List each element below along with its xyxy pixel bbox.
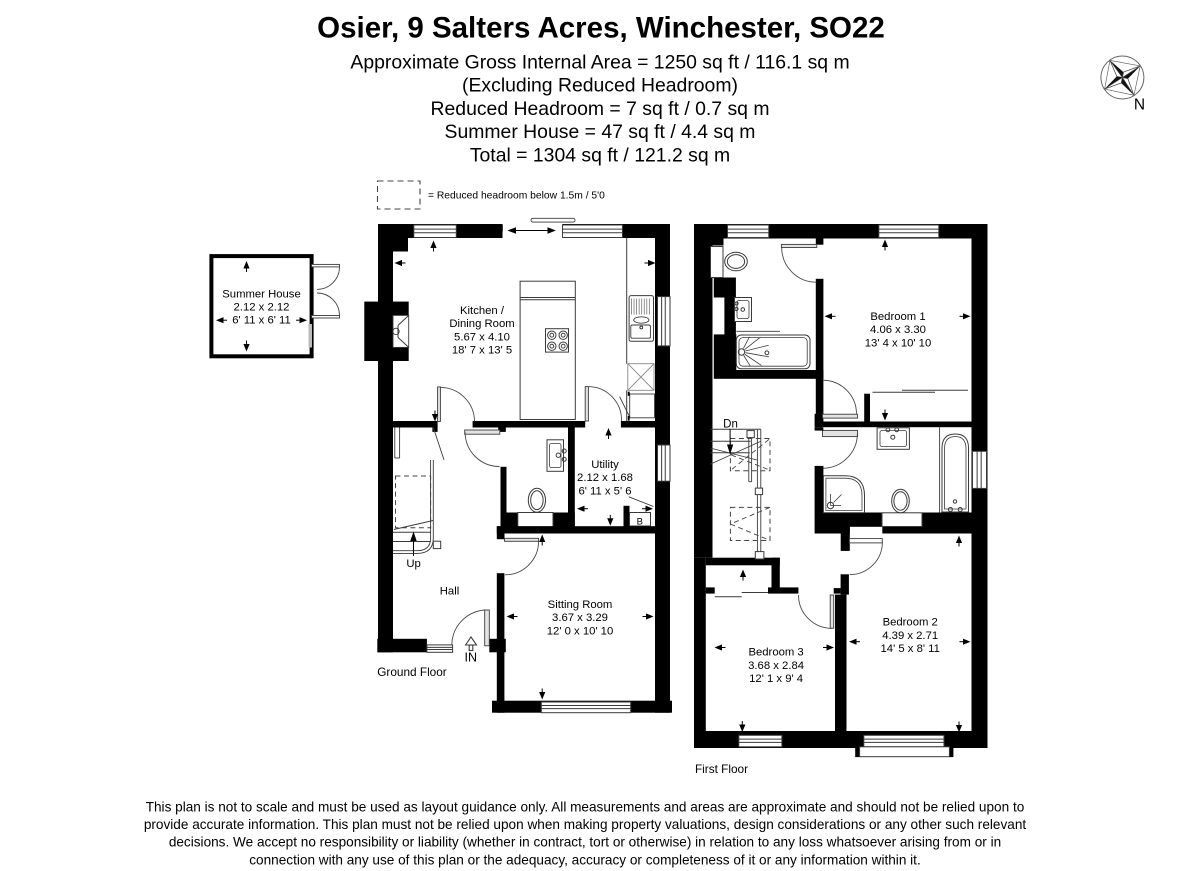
svg-text:18' 7 x 13' 5: 18' 7 x 13' 5 (452, 345, 512, 357)
svg-text:= Reduced headroom below 1.5m: = Reduced headroom below 1.5m / 5'0 (428, 191, 605, 202)
svg-text:12' 1 x 9' 4: 12' 1 x 9' 4 (749, 673, 803, 685)
svg-text:Ground Floor: Ground Floor (377, 665, 447, 679)
svg-text:decisions. We accept no respon: decisions. We accept no responsibility o… (169, 835, 1001, 850)
svg-text:IN: IN (465, 651, 478, 665)
svg-text:2.12 x 1.68: 2.12 x 1.68 (577, 472, 633, 484)
svg-text:connection with any use of thi: connection with any use of this plan or … (249, 852, 920, 867)
svg-text:N: N (1134, 97, 1145, 114)
svg-text:13' 4 x 10' 10: 13' 4 x 10' 10 (865, 337, 932, 349)
svg-text:Up: Up (406, 558, 420, 570)
svg-text:Summer House: Summer House (222, 288, 300, 300)
svg-text:12' 0 x 10' 10: 12' 0 x 10' 10 (547, 625, 614, 637)
svg-text:(Excluding Reduced Headroom): (Excluding Reduced Headroom) (462, 75, 738, 97)
svg-text:Reduced Headroom = 7 sq ft / 0: Reduced Headroom = 7 sq ft / 0.7 sq m (431, 98, 770, 120)
svg-text:6' 11 x 6' 11: 6' 11 x 6' 11 (232, 315, 291, 327)
svg-text:Total = 1304 sq ft / 121.2 sq: Total = 1304 sq ft / 121.2 sq m (470, 144, 730, 166)
svg-text:Bedroom 3: Bedroom 3 (748, 647, 803, 659)
svg-text:First Floor: First Floor (695, 762, 748, 776)
svg-text:4.39 x 2.71: 4.39 x 2.71 (882, 630, 938, 642)
svg-text:B: B (637, 516, 643, 527)
svg-text:5.67 x 4.10: 5.67 x 4.10 (454, 331, 510, 343)
svg-text:This plan is not to scale and: This plan is not to scale and must be us… (146, 800, 1025, 815)
svg-text:Hall: Hall (440, 585, 459, 597)
svg-text:3.68 x 2.84: 3.68 x 2.84 (748, 660, 804, 672)
svg-text:Kitchen /: Kitchen / (460, 305, 505, 317)
svg-text:Bedroom 1: Bedroom 1 (870, 311, 925, 323)
svg-text:4.06 x 3.30: 4.06 x 3.30 (870, 324, 926, 336)
svg-text:3.67 x 3.29: 3.67 x 3.29 (552, 612, 608, 624)
svg-text:6' 11 x 5' 6: 6' 11 x 5' 6 (578, 485, 631, 497)
svg-text:Dining Room: Dining Room (449, 318, 514, 330)
svg-text:Sitting Room: Sitting Room (548, 599, 613, 611)
svg-text:Dn: Dn (723, 418, 738, 430)
svg-text:Approximate Gross Internal Are: Approximate Gross Internal Area = 1250 s… (350, 52, 849, 74)
svg-text:Utility: Utility (591, 459, 619, 471)
svg-text:14' 5 x 8' 11: 14' 5 x 8' 11 (881, 643, 940, 655)
svg-text:provide accurate information.: provide accurate information. This plan … (144, 817, 1027, 832)
svg-text:2.12 x 2.12: 2.12 x 2.12 (234, 302, 290, 314)
svg-text:Osier, 9 Salters Acres, Winche: Osier, 9 Salters Acres, Winchester, SO22 (317, 12, 885, 45)
svg-text:Bedroom 2: Bedroom 2 (883, 617, 938, 629)
svg-text:Summer House = 47 sq ft / 4.4: Summer House = 47 sq ft / 4.4 sq m (445, 121, 756, 143)
